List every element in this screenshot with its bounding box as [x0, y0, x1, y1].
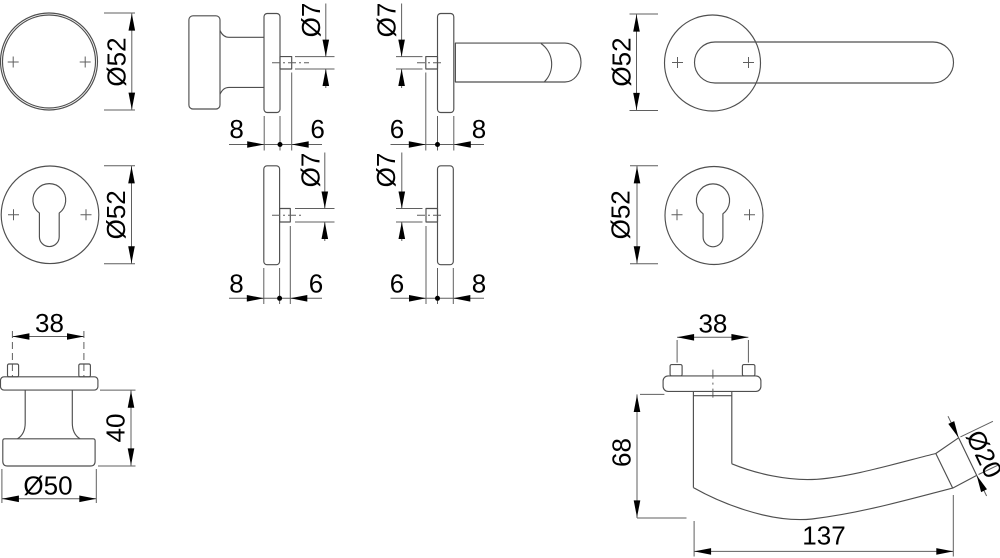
svg-text:8: 8 — [472, 269, 486, 299]
svg-text:Ø7: Ø7 — [371, 3, 401, 38]
svg-text:8: 8 — [472, 114, 486, 144]
svg-text:Ø52: Ø52 — [607, 37, 637, 86]
svg-text:Ø52: Ø52 — [606, 190, 636, 239]
svg-text:6: 6 — [390, 269, 404, 299]
svg-text:38: 38 — [698, 309, 727, 339]
svg-text:6: 6 — [390, 114, 404, 144]
svg-text:38: 38 — [35, 308, 64, 338]
svg-text:Ø7: Ø7 — [296, 3, 326, 38]
svg-text:Ø52: Ø52 — [101, 190, 131, 239]
svg-text:6: 6 — [309, 269, 323, 299]
svg-text:40: 40 — [101, 414, 131, 443]
svg-text:137: 137 — [802, 521, 845, 551]
svg-text:8: 8 — [229, 114, 243, 144]
svg-text:Ø52: Ø52 — [102, 37, 132, 86]
svg-text:6: 6 — [310, 114, 324, 144]
svg-text:68: 68 — [607, 438, 637, 467]
svg-text:Ø50: Ø50 — [23, 471, 72, 501]
svg-text:Ø7: Ø7 — [371, 153, 401, 188]
svg-text:Ø7: Ø7 — [295, 153, 325, 188]
svg-text:8: 8 — [229, 269, 243, 299]
